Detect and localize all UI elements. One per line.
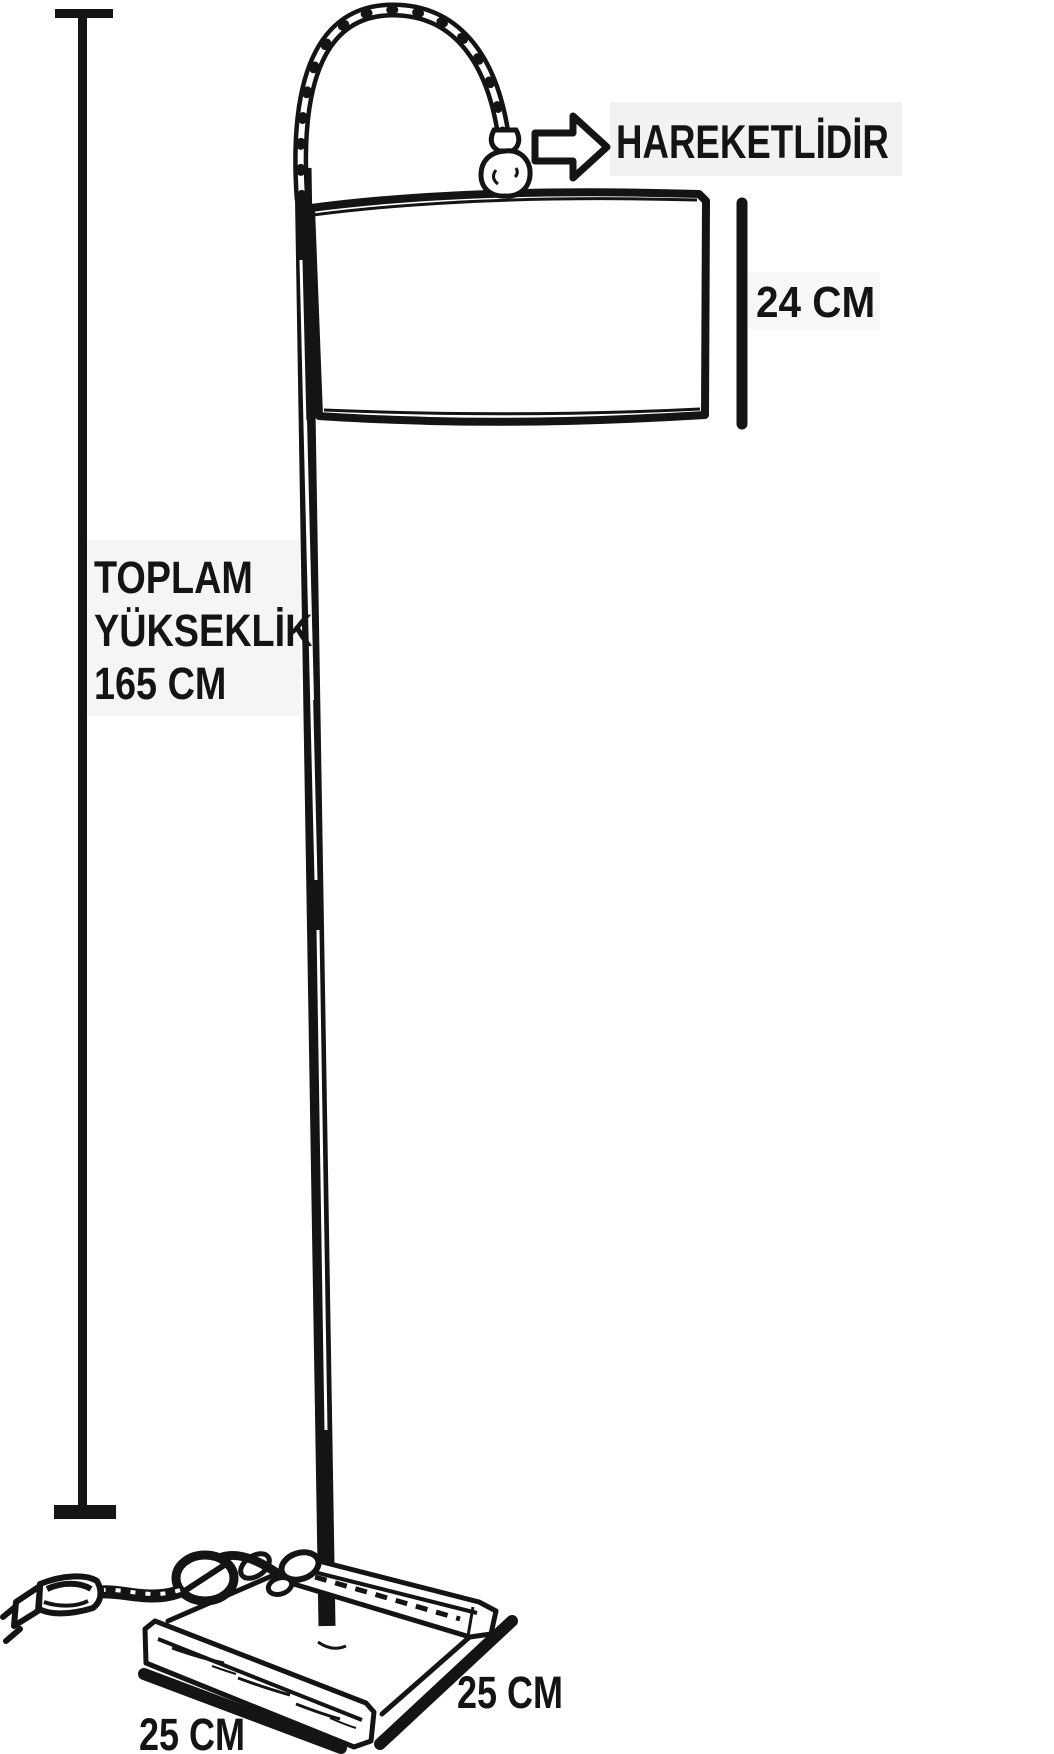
shade-outline bbox=[311, 192, 706, 422]
total-height-line3: 165 CM bbox=[94, 657, 312, 710]
total-height-line1: TOPLAM bbox=[94, 551, 312, 604]
lamp-shade bbox=[311, 192, 706, 422]
joint-neck bbox=[491, 130, 519, 151]
arch-core bbox=[301, 10, 503, 198]
movable-arrow-icon bbox=[535, 116, 607, 178]
shade-height-label: 24 CM bbox=[756, 279, 875, 327]
pole-tip-shadow bbox=[318, 1642, 346, 1648]
lamp-line-art bbox=[0, 0, 1054, 1754]
base-side-label: 25 CM bbox=[457, 1670, 563, 1715]
total-height-dimension-line bbox=[54, 14, 116, 1513]
power-cord bbox=[3, 1555, 277, 1641]
total-height-line2: YÜKSEKLİK bbox=[94, 604, 312, 657]
cord-segment bbox=[100, 1592, 178, 1596]
cord-loop-cross bbox=[183, 1562, 229, 1592]
base-front-label: 25 CM bbox=[139, 1712, 245, 1754]
joint-bulb bbox=[481, 151, 530, 196]
plug-nose bbox=[14, 1586, 40, 1626]
movable-label: HAREKETLİDİR bbox=[616, 116, 889, 168]
plug-prong bbox=[6, 1629, 20, 1641]
diagram-canvas: HAREKETLİDİR 24 CM TOPLAM YÜKSEKLİK 165 … bbox=[0, 0, 1054, 1754]
total-height-label: TOPLAM YÜKSEKLİK 165 CM bbox=[94, 551, 312, 710]
power-plug bbox=[3, 1576, 100, 1641]
lamp-joint bbox=[481, 130, 530, 196]
lamp-arch bbox=[301, 10, 503, 198]
right-arrow-shape bbox=[535, 116, 607, 178]
